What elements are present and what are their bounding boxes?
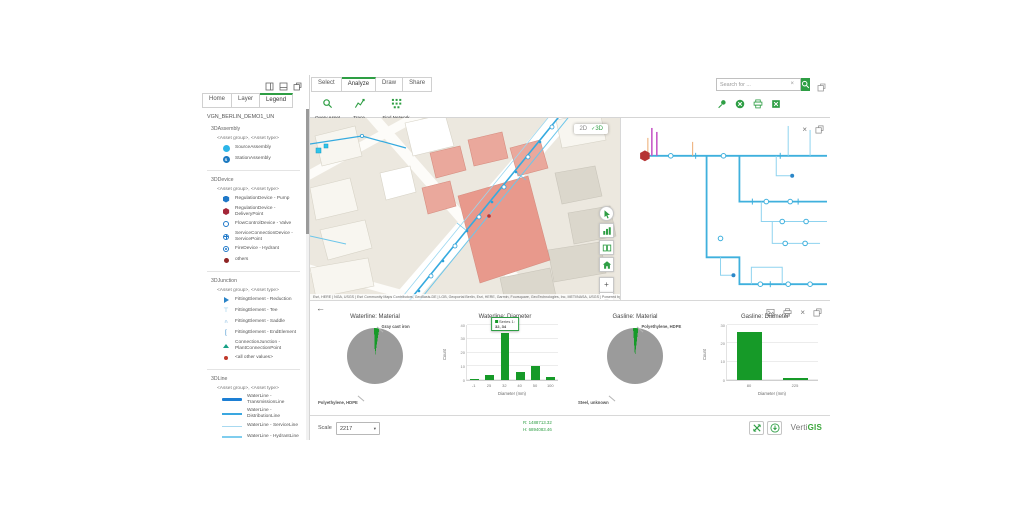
x-tick-labels: 80225 [726,383,818,388]
app-window: HomeLayerLegend VGN_BERLIN_DEMO1_UN 3DAs… [200,75,830,440]
scale-select[interactable]: 2217 ▾ [336,422,380,435]
legend-item: others [221,256,302,264]
network-diagram-icon [391,96,402,114]
legend-item: StationAssembly [221,155,302,163]
status-bar: Scale 2217 ▾ R: 1488713.32 H: 6894083.46… [310,415,830,440]
y-tick-label: 30 [714,323,725,328]
y-tick-label: 10 [714,359,725,364]
network-diagram-canvas [621,118,830,299]
chart-waterline-diameter: Waterline: Diameter Count 010203040Serie… [440,312,570,415]
legend-item-label: FireDevice - Hydrant [235,246,279,252]
legend-item-label: StationAssembly [235,156,271,162]
bar-225[interactable] [783,378,808,380]
charts-panel: ← × Waterline: Material Gray cast ironPo… [310,300,830,415]
legend-item: FittingElement - Tee [221,307,302,315]
legend-item: RegulationDevice - Pump [221,195,302,203]
legend-separator [207,271,300,272]
pie-slice-label: Gray cast iron [382,324,410,329]
ribbon-tab-analyze[interactable]: Analyze [342,77,376,92]
legend-item: FittingElement - Reduction [221,296,302,304]
chart-gasline-diameter: Gasline: Diameter Count 0102030 80225 Di… [700,312,830,415]
map-view[interactable]: 2D ✓3D + − Esri, HERE | NGA, USGS | Esri… [310,118,620,300]
y-tick-label: 0 [454,378,465,383]
legend-section-subheading: <Asset group>, <Asset type> [217,288,302,293]
x-tick-label: -1 [466,383,481,388]
legend-item-label: FittingElement - Saddle [235,319,285,325]
bar-25[interactable] [485,375,494,381]
zoom-extent-icon[interactable] [771,96,781,114]
bracket-blue-icon [221,329,231,337]
legend-item-label: ConnectionJunction - PlantConnectionPoin… [235,340,302,351]
circle-cyan-icon [221,144,231,152]
waterline-diameter-plot: 010203040Series 1:32, 34 [466,325,558,381]
print-icon[interactable] [753,96,763,114]
coordinates-readout: R: 1488713.32 H: 6894083.46 [523,420,552,433]
search-cluster: × [716,78,810,114]
dot-red-icon [221,354,231,362]
trace-icon [354,96,365,114]
legend-section-subheading: <Asset group>, <Asset type> [217,386,302,391]
y-tick-label: 20 [454,350,465,355]
chevron-down-icon: ▾ [374,426,376,432]
legend-item: RegulationDevice - DeliveryPoint [221,206,302,217]
legend-item: WaterLine - ServiceLine [221,422,302,430]
x-tick-label: 32 [497,383,512,388]
pointer-tool-button[interactable] [599,206,614,221]
bar-32[interactable] [501,333,510,380]
tab-legend[interactable]: Legend [260,93,293,108]
network-diagram-panel[interactable]: × [620,118,830,300]
left-panel-tabs: HomeLayerLegend [202,93,293,108]
close-diagram-icon[interactable]: × [802,126,807,134]
tab-layer[interactable]: Layer [232,93,260,108]
vertigis-logo: VertiGIS [791,423,822,432]
x-tick-label: 100 [543,383,558,388]
y-tick-label: 30 [454,336,465,341]
y-tick-label: 10 [454,364,465,369]
legend-item-label: WaterLine - HydrantLine [247,434,299,440]
x-tick-label: 225 [772,383,818,388]
x-tick-label: 50 [527,383,542,388]
legend-item: SourceAssembly [221,144,302,152]
legend-item: FittingElement - Saddle [221,318,302,326]
legend-item-label: SourceAssembly [235,145,271,151]
hex-red-icon [221,208,231,216]
legend-body: VGN_BERLIN_DEMO1_UN 3DAssembly<Asset gro… [200,109,304,440]
view-dimension-toggle[interactable]: 2D ✓3D [574,124,608,134]
legend-section-heading: 3DLine [211,376,302,382]
clear-results-icon[interactable] [735,96,745,114]
popout-diagram-icon[interactable] [815,121,824,139]
y-tick-label: 40 [454,323,465,328]
home-button[interactable] [599,257,614,272]
map-canvas [310,118,620,300]
bookmarks-button[interactable] [599,240,614,255]
legend-item: WaterLine - HydrantLine [221,433,302,440]
legend-separator [207,170,300,171]
pie-slice-label: Steel, unknown [578,400,609,405]
coordinate-x: R: 1488713.32 [523,420,552,427]
legend-item: ServiceConnectionDevice - ServicePoint [221,231,302,242]
view-3d-option[interactable]: 3D [595,126,603,132]
x-tick-label: 25 [481,383,496,388]
legend-item: FireDevice - Hydrant [221,245,302,253]
ribbon: SelectAnalyzeDrawShare Query AssetTraceF… [310,75,830,118]
bar-100[interactable] [546,377,555,380]
legend-section-heading: 3DDevice [211,177,302,183]
main-area: SelectAnalyzeDrawShare Query AssetTraceF… [310,75,830,440]
ribbon-tab-select[interactable]: Select [311,77,342,92]
bar-40[interactable] [516,372,525,380]
popout-panel-icon[interactable] [293,78,302,96]
legend-section-heading: 3DJunction [211,278,302,284]
search-clear-icon[interactable]: × [790,80,794,88]
search-button[interactable] [801,78,810,91]
chart-title: Waterline: Material [310,314,440,320]
tri-blue-icon [221,296,231,304]
waterline-material-pie[interactable] [347,328,403,384]
magnifier-icon [322,96,333,114]
legend-item-label: others [235,257,248,263]
legend-panel: HomeLayerLegend VGN_BERLIN_DEMO1_UN 3DAs… [200,75,310,440]
legend-item-label: WaterLine - ServiceLine [247,423,298,429]
gasline-diameter-plot: 0102030 [726,325,818,381]
collapse-toolbar-button[interactable] [749,421,764,435]
y-tick-label: 20 [714,341,725,346]
ribbon-tabs: SelectAnalyzeDrawShare [311,77,432,92]
y-axis-label: Count [442,349,447,360]
line-trans-icon [221,396,243,404]
chart-gasline-material: Gasline: Material Polyethylene, HDPEStee… [570,312,700,415]
legend-item: WaterLine - DistributionLine [221,408,302,419]
legend-section-subheading: <Asset group>, <Asset type> [217,187,302,192]
line-hyd-icon [221,433,243,440]
search-input[interactable] [716,78,801,91]
download-button[interactable] [767,421,782,435]
legend-item: <all other values> [221,354,302,362]
legend-item-label: ServiceConnectionDevice - ServicePoint [235,231,302,242]
add-pin-icon[interactable] [717,96,727,114]
tri-green-icon [221,342,231,350]
legend-item-label: FittingElement - Reduction [235,297,292,303]
line-serv-icon [221,422,243,430]
legend-separator [207,369,300,370]
legend-item-label: RegulationDevice - Pump [235,196,289,202]
x-tick-labels: -125324050100 [466,383,558,388]
y-tick-label: 0 [714,378,725,383]
legend-item-label: WaterLine - DistributionLine [247,408,302,419]
legend-scrollbar[interactable] [306,109,309,440]
legend-item-label: RegulationDevice - DeliveryPoint [235,206,302,217]
hex-blue-icon [221,195,231,203]
chart-title: Gasline: Material [570,314,700,320]
map-tools: + − [599,206,614,300]
chart-tool-button[interactable] [599,223,614,238]
scale-value: 2217 [340,426,352,432]
legend-item-label: WaterLine - TransmissionLine [247,394,302,405]
ring-blue-icon [221,220,231,228]
legend-item-label: FlowControlDevice - Valve [235,221,291,227]
bar-80[interactable] [737,332,762,380]
legend-section-heading: 3DAssembly [211,126,302,132]
legend-item: WaterLine - TransmissionLine [221,394,302,405]
x-axis-label: Diameter (mm) [726,391,818,396]
legend-layer-title: VGN_BERLIN_DEMO1_UN [207,114,302,120]
gasline-material-pie[interactable] [607,328,663,384]
legend-item: FlowControlDevice - Valve [221,220,302,228]
saddle-blue-icon [221,318,231,326]
layout-popout-icon[interactable] [817,79,826,97]
x-axis-label: Diameter (mm) [466,391,558,396]
dot-ring-blue-icon [221,245,231,253]
pie-slice-label: Polyethylene, HDPE [318,400,358,405]
scale-label: Scale [318,425,332,431]
legend-item: FittingElement - EndElement [221,329,302,337]
legend-item-label: <all other values> [235,355,273,361]
x-tick-label: 80 [726,383,772,388]
ribbon-tab-draw[interactable]: Draw [376,77,403,92]
gear-blue-icon [221,233,231,241]
view-2d-option[interactable]: 2D [579,126,587,132]
coordinate-y: H: 6894083.46 [523,427,552,434]
bar-50[interactable] [531,366,540,380]
legend-item-label: FittingElement - Tee [235,308,278,314]
pie-slice-label: Polyethylene, HDPE [642,324,682,329]
bar--1[interactable] [470,379,479,380]
tee-blue-icon [221,307,231,315]
dot-darkred-icon [221,256,231,264]
chart-title: Gasline: Diameter [700,314,830,320]
ribbon-tab-share[interactable]: Share [403,77,432,92]
x-tick-label: 40 [512,383,527,388]
tab-home[interactable]: Home [202,93,232,108]
chart-tooltip: Series 1:32, 34 [491,317,519,331]
circle-s-icon [221,155,231,163]
legend-item: ConnectionJunction - PlantConnectionPoin… [221,340,302,351]
legend-section-subheading: <Asset group>, <Asset type> [217,136,302,141]
chart-waterline-material: Waterline: Material Gray cast ironPolyet… [310,312,440,415]
zoom-in-button[interactable]: + [599,277,614,292]
legend-item-label: FittingElement - EndElement [235,330,296,336]
line-dist-icon [221,410,243,418]
y-axis-label: Count [702,349,707,360]
